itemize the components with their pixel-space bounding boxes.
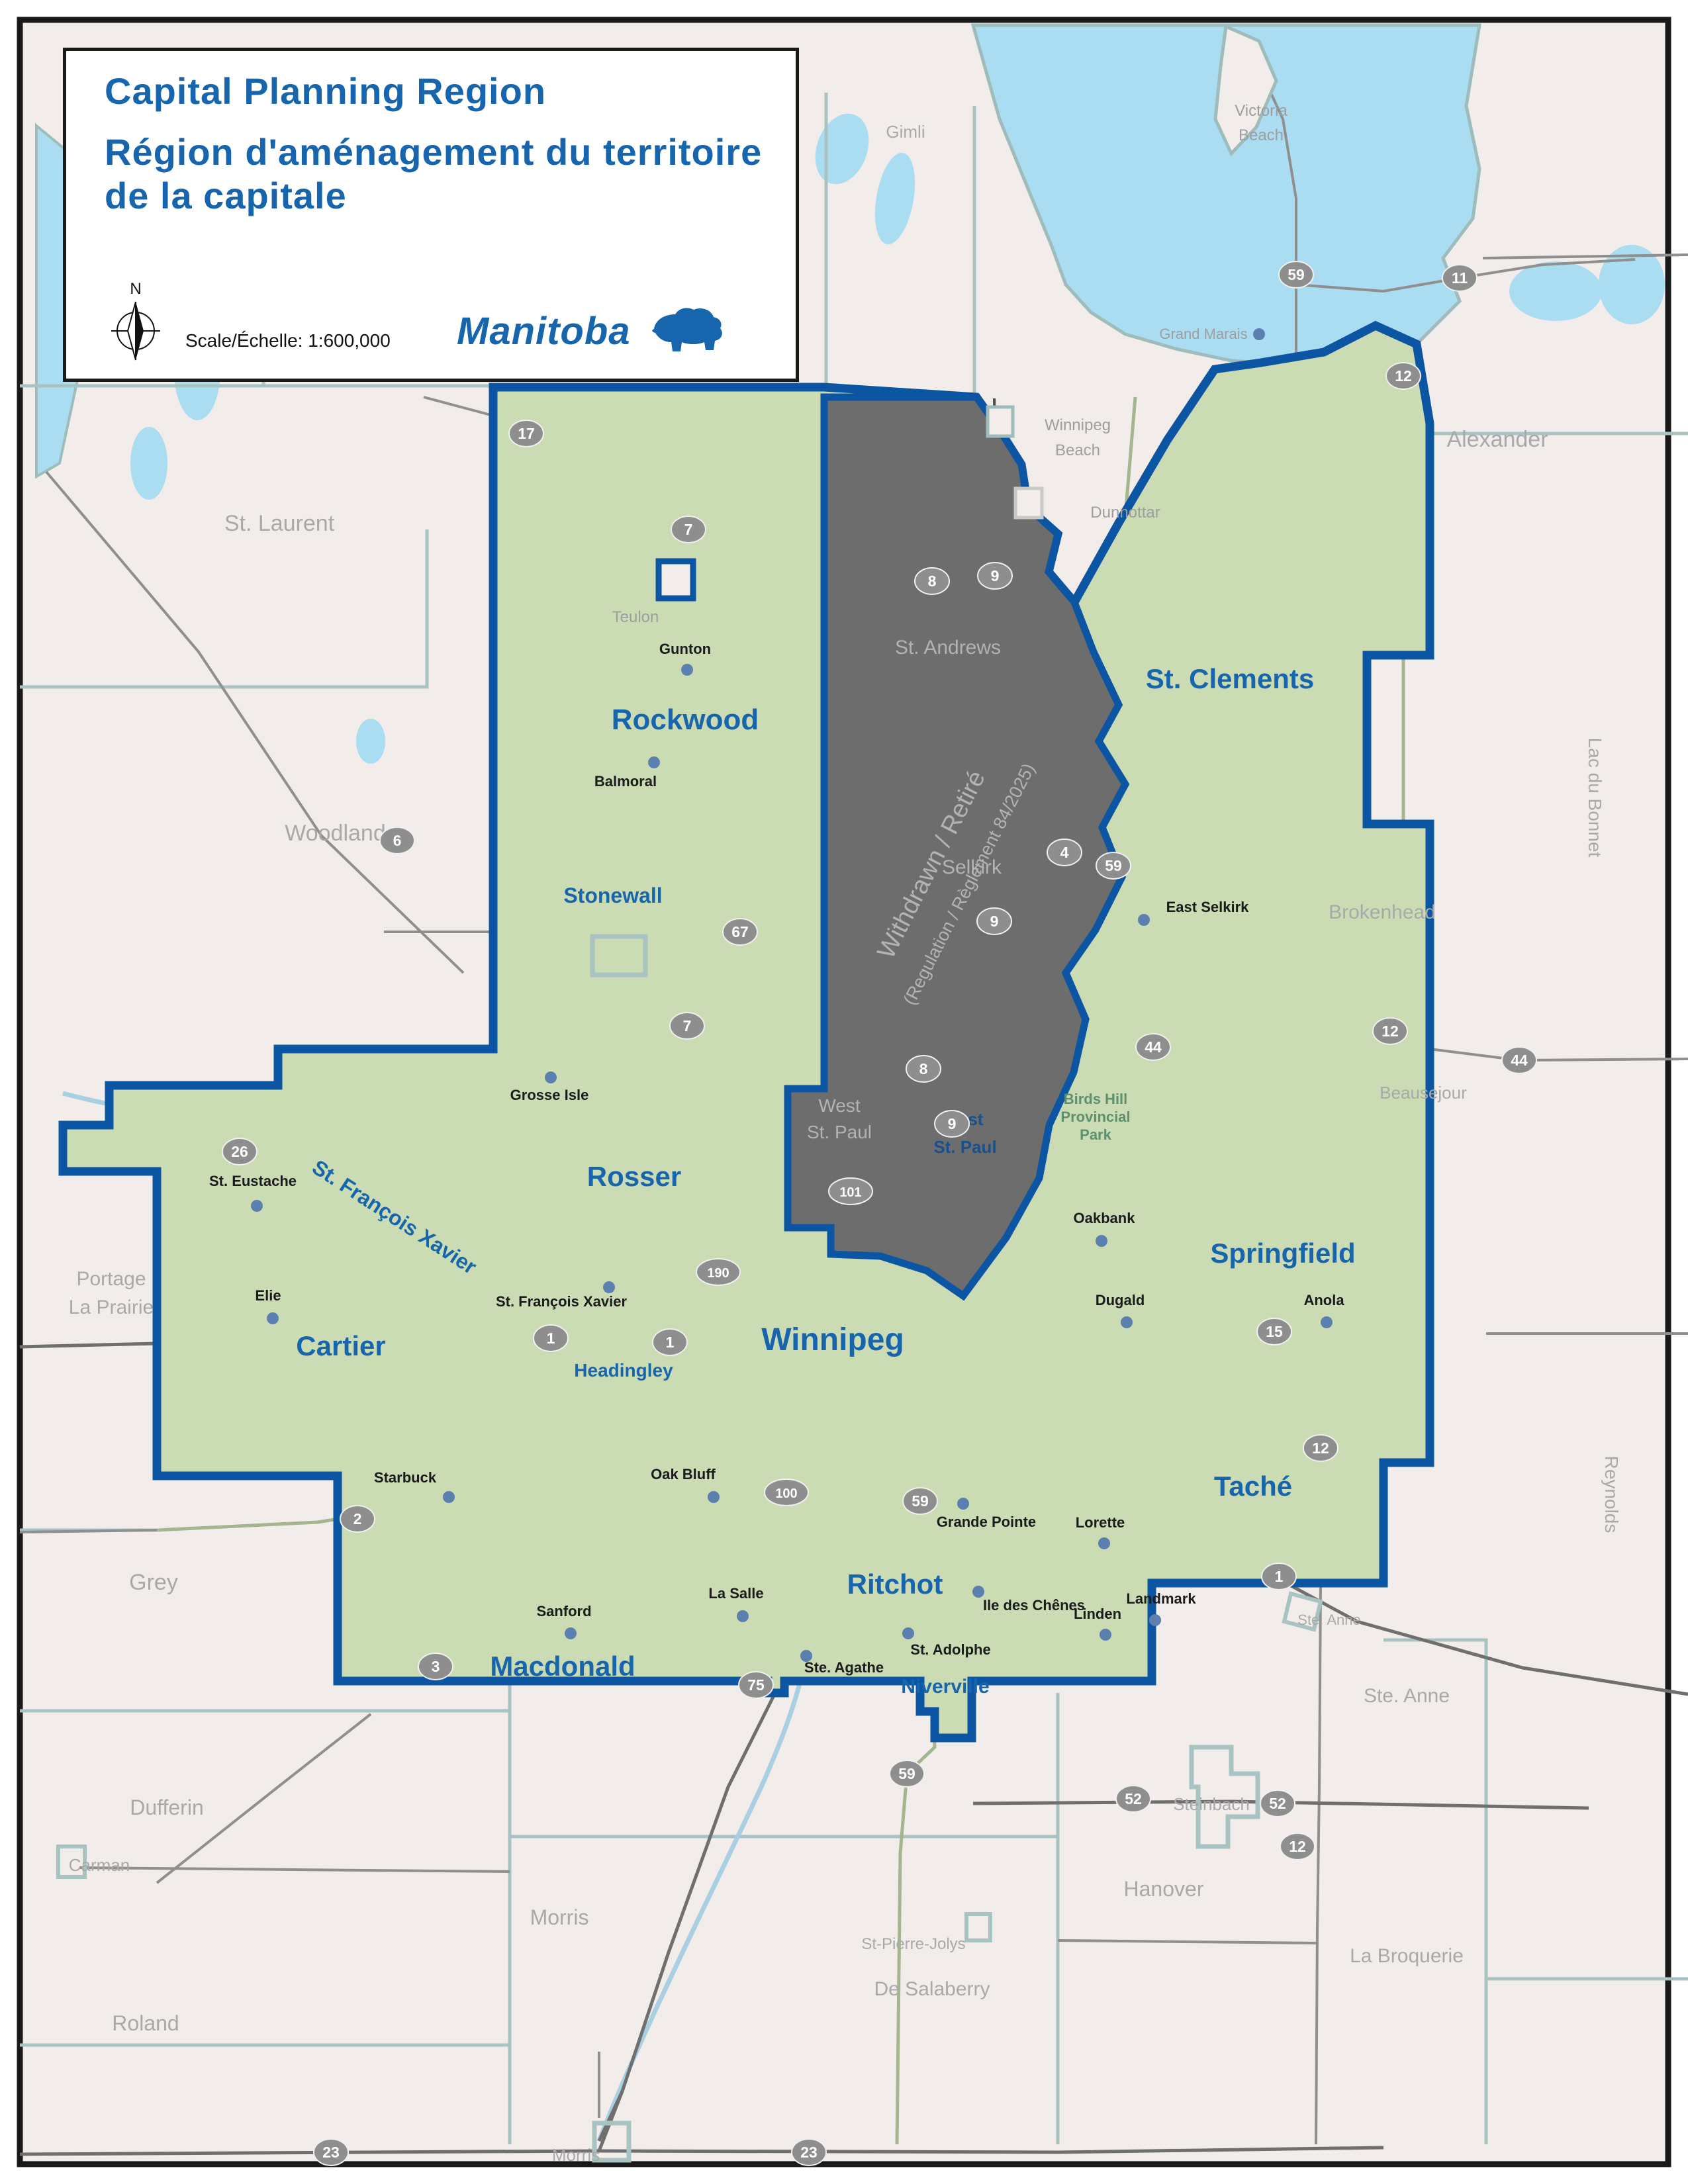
shield-ellipse [1442,265,1477,291]
bison-icon [642,301,728,361]
lake-east-bay [1509,261,1602,321]
town-dot [1253,328,1265,340]
highway-shield-67: 67 [723,919,757,945]
shield-ellipse [696,1259,740,1285]
scale-row: N Scale/Échelle: 1:600,000 Manitoba [86,289,781,369]
highway-shield-8: 8 [906,1056,941,1082]
title-english: Capital Planning Region [105,70,546,112]
highway-shield-59: 59 [1096,852,1131,879]
town-dot [251,1200,263,1212]
shield-ellipse [1280,1833,1315,1860]
town-dot [443,1491,455,1503]
dunnottar-hole [1015,488,1042,518]
town-dot [1121,1316,1133,1328]
shield-ellipse [1116,1786,1150,1812]
town-dot [1138,914,1150,926]
highway-shield-52: 52 [1116,1786,1150,1812]
shield-ellipse [1386,363,1421,389]
highway-shield-9: 9 [977,908,1011,934]
highway-shield-1: 1 [534,1325,568,1351]
shield-ellipse [915,568,949,594]
town-dot [800,1650,812,1662]
shield-ellipse [977,908,1011,934]
highway-shield-59: 59 [903,1488,937,1514]
highway-shield-190: 190 [696,1259,740,1285]
shield-ellipse [1136,1034,1170,1060]
shield-ellipse [1257,1318,1291,1345]
shield-ellipse [1502,1047,1536,1073]
highway-shield-26: 26 [222,1138,257,1165]
town-dot [565,1627,577,1639]
shield-ellipse [1047,839,1082,866]
shield-ellipse [534,1325,568,1351]
shield-ellipse [903,1488,937,1514]
highway-shield-7: 7 [671,516,706,543]
highway-shield-75: 75 [739,1672,773,1698]
shield-ellipse [653,1329,687,1355]
shield-ellipse [380,827,414,854]
highway-shield-23: 23 [314,2139,348,2165]
highway-shield-12: 12 [1373,1018,1407,1044]
manitoba-logo: Manitoba [457,309,631,353]
shield-ellipse [935,1111,969,1137]
compass-rose-icon: N [106,279,172,365]
town-dot [1100,1629,1111,1641]
highway-shield-1: 1 [653,1329,687,1355]
town-dot [603,1281,615,1293]
town-dot [957,1498,969,1510]
town-dot [267,1312,279,1324]
map-title: Capital Planning Region Région d'aménage… [105,69,796,218]
highway-shield-6: 6 [380,827,414,854]
town-dot [545,1071,557,1083]
highway-shield-52: 52 [1260,1790,1295,1817]
compass-north-letter: N [130,280,141,298]
shield-ellipse [829,1178,872,1205]
highway-shield-12: 12 [1303,1435,1338,1461]
shield-ellipse [890,1760,924,1787]
highway-shield-9: 9 [978,563,1012,589]
town-dot [1098,1537,1110,1549]
town-dot [737,1610,749,1622]
town-dot [681,664,693,676]
title-box: Capital Planning Region Région d'aménage… [63,48,799,382]
highway-shield-1: 1 [1262,1563,1296,1590]
highway-shield-4: 4 [1047,839,1082,866]
shield-ellipse [1279,261,1313,288]
highway-shield-100: 100 [765,1479,808,1506]
shield-ellipse [906,1056,941,1082]
shield-ellipse [1373,1018,1407,1044]
highway-shield-12: 12 [1386,363,1421,389]
town-dot [1096,1235,1107,1247]
small-lake5 [356,719,385,764]
shield-ellipse [1303,1435,1338,1461]
shield-ellipse [1096,852,1131,879]
shield-ellipse [418,1653,453,1680]
town-grand-marais-dot [1253,328,1265,340]
manitoba-logo-text: Manitoba [457,310,631,353]
highway-shield-23: 23 [792,2139,826,2165]
small-lake [130,427,167,500]
shield-ellipse [509,420,543,447]
town-dot [1149,1614,1161,1626]
town-dot [972,1586,984,1598]
highway-shield-17: 17 [509,420,543,447]
highway-shield-15: 15 [1257,1318,1291,1345]
town-dot [648,756,660,768]
highway-shield-44: 44 [1502,1047,1536,1073]
highway-shield-12: 12 [1280,1833,1315,1860]
highway-shield-59: 59 [1279,261,1313,288]
shield-ellipse [314,2139,348,2165]
winnipeg-beach-hole [988,407,1013,436]
highway-shield-9: 9 [935,1111,969,1137]
highway-shield-11: 11 [1442,265,1477,291]
shield-ellipse [739,1672,773,1698]
teulon-town-hole [659,561,693,598]
shield-ellipse [765,1479,808,1506]
highway-shield-7: 7 [670,1013,704,1039]
shield-ellipse [792,2139,826,2165]
highway-shield-2: 2 [340,1506,375,1532]
highway-shield-8: 8 [915,568,949,594]
shield-ellipse [1260,1790,1295,1817]
town-dot [708,1491,720,1503]
shield-ellipse [1262,1563,1296,1590]
highway-shield-101: 101 [829,1178,872,1205]
shield-ellipse [978,563,1012,589]
town-dot [902,1627,914,1639]
highway-shield-3: 3 [418,1653,453,1680]
title-french: Région d'aménagement du territoire de la… [105,130,796,218]
town-dot [1321,1316,1333,1328]
highway-shield-44: 44 [1136,1034,1170,1060]
shield-ellipse [670,1013,704,1039]
highway-shield-59: 59 [890,1760,924,1787]
shield-ellipse [222,1138,257,1165]
shield-ellipse [723,919,757,945]
map-page: RockwoodStonewallRosserSt. François Xavi… [0,0,1688,2184]
shield-ellipse [340,1506,375,1532]
shield-ellipse [671,516,706,543]
scale-label: Scale/Échelle: 1:600,000 [185,330,391,351]
